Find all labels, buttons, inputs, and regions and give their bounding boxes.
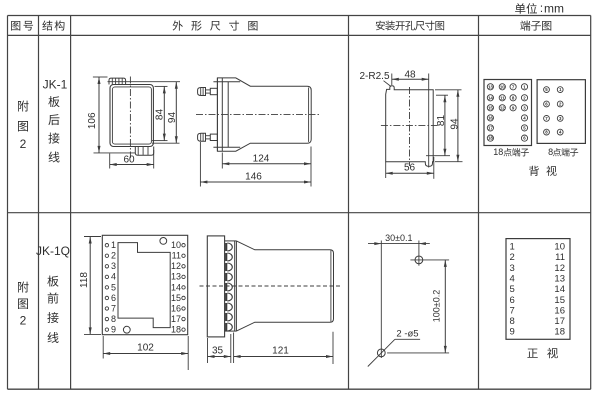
svg-text::: : bbox=[540, 3, 543, 15]
svg-text:1: 1 bbox=[111, 240, 116, 250]
svg-text:15: 15 bbox=[488, 105, 493, 110]
svg-text:18: 18 bbox=[171, 324, 181, 334]
svg-text:7: 7 bbox=[512, 84, 515, 89]
svg-text:18: 18 bbox=[488, 136, 493, 141]
svg-text:14: 14 bbox=[488, 95, 493, 100]
svg-text:9: 9 bbox=[510, 327, 515, 338]
svg-text:17: 17 bbox=[488, 125, 493, 130]
svg-text:2: 2 bbox=[111, 251, 116, 261]
svg-text:6: 6 bbox=[523, 136, 526, 141]
svg-text:94: 94 bbox=[167, 112, 178, 124]
svg-text:4: 4 bbox=[111, 272, 116, 282]
svg-text:17: 17 bbox=[554, 316, 565, 327]
svg-text:6: 6 bbox=[510, 295, 515, 306]
svg-text:14: 14 bbox=[171, 282, 181, 292]
svg-text:146: 146 bbox=[245, 171, 262, 182]
svg-text:2: 2 bbox=[20, 137, 27, 151]
svg-text:8: 8 bbox=[548, 147, 553, 157]
svg-text:7: 7 bbox=[545, 116, 548, 121]
svg-text:5: 5 bbox=[111, 282, 116, 292]
svg-text:16: 16 bbox=[171, 303, 181, 313]
svg-text:121: 121 bbox=[272, 346, 289, 357]
svg-text:30±0.1: 30±0.1 bbox=[385, 233, 412, 243]
svg-text:9: 9 bbox=[512, 105, 515, 110]
svg-text:3: 3 bbox=[510, 263, 515, 274]
svg-text:10: 10 bbox=[500, 84, 505, 89]
svg-text:JK-1Q: JK-1Q bbox=[36, 244, 70, 258]
svg-text:5: 5 bbox=[545, 87, 548, 92]
svg-text:15: 15 bbox=[171, 293, 181, 303]
svg-text:1: 1 bbox=[559, 87, 562, 92]
svg-text:48: 48 bbox=[404, 69, 416, 80]
svg-text:35: 35 bbox=[212, 346, 224, 357]
svg-text:15: 15 bbox=[554, 295, 565, 306]
svg-text:6: 6 bbox=[111, 293, 116, 303]
svg-text:16: 16 bbox=[554, 305, 565, 316]
svg-text:3: 3 bbox=[111, 261, 116, 271]
svg-text:10: 10 bbox=[554, 242, 565, 253]
svg-text:3: 3 bbox=[559, 116, 562, 121]
svg-text:2: 2 bbox=[559, 102, 562, 107]
svg-text:12: 12 bbox=[171, 261, 181, 271]
svg-text:mm: mm bbox=[544, 2, 564, 16]
svg-text:1: 1 bbox=[510, 242, 515, 253]
svg-text:16: 16 bbox=[488, 115, 493, 120]
svg-text:102: 102 bbox=[137, 342, 154, 353]
svg-text:11: 11 bbox=[172, 251, 181, 261]
svg-text:9: 9 bbox=[111, 324, 116, 334]
svg-text:7: 7 bbox=[111, 303, 116, 313]
svg-text:118: 118 bbox=[79, 272, 90, 288]
svg-text:11: 11 bbox=[555, 252, 565, 263]
svg-text:8: 8 bbox=[510, 316, 515, 327]
svg-text:84: 84 bbox=[155, 109, 166, 121]
svg-text:8: 8 bbox=[111, 314, 116, 324]
svg-text:17: 17 bbox=[171, 314, 181, 324]
svg-text:JK-1: JK-1 bbox=[43, 78, 68, 92]
svg-text:106: 106 bbox=[87, 112, 98, 129]
svg-text:18: 18 bbox=[493, 147, 503, 157]
svg-text:2 -ø5: 2 -ø5 bbox=[396, 328, 418, 339]
svg-text:100±0.2: 100±0.2 bbox=[432, 290, 442, 322]
svg-text:12: 12 bbox=[500, 105, 505, 110]
svg-text:4: 4 bbox=[510, 273, 515, 284]
svg-text:56: 56 bbox=[404, 162, 416, 173]
svg-text:8: 8 bbox=[512, 95, 515, 100]
svg-text:5: 5 bbox=[523, 125, 526, 130]
svg-text:6: 6 bbox=[545, 102, 548, 107]
svg-text:124: 124 bbox=[253, 153, 270, 164]
svg-text:2: 2 bbox=[510, 252, 515, 263]
svg-text:4: 4 bbox=[523, 115, 526, 120]
svg-text:2: 2 bbox=[523, 95, 526, 100]
svg-text:14: 14 bbox=[554, 284, 565, 295]
svg-text:8: 8 bbox=[545, 130, 548, 135]
svg-text:81: 81 bbox=[436, 115, 447, 127]
svg-text:18: 18 bbox=[554, 327, 565, 338]
svg-text:13: 13 bbox=[554, 273, 565, 284]
svg-text:2: 2 bbox=[20, 314, 27, 328]
svg-text:13: 13 bbox=[488, 84, 493, 89]
svg-text:10: 10 bbox=[171, 240, 181, 250]
svg-text:11: 11 bbox=[500, 95, 505, 100]
svg-text:60: 60 bbox=[123, 155, 135, 166]
svg-text:4: 4 bbox=[559, 130, 562, 135]
svg-text:1: 1 bbox=[523, 84, 526, 89]
svg-text:7: 7 bbox=[510, 305, 515, 316]
svg-text:2-R2.5: 2-R2.5 bbox=[359, 71, 389, 82]
svg-text:12: 12 bbox=[554, 263, 565, 274]
svg-text:13: 13 bbox=[171, 272, 181, 282]
svg-text:94: 94 bbox=[450, 118, 461, 130]
svg-text:3: 3 bbox=[523, 105, 526, 110]
svg-text:5: 5 bbox=[510, 284, 515, 295]
